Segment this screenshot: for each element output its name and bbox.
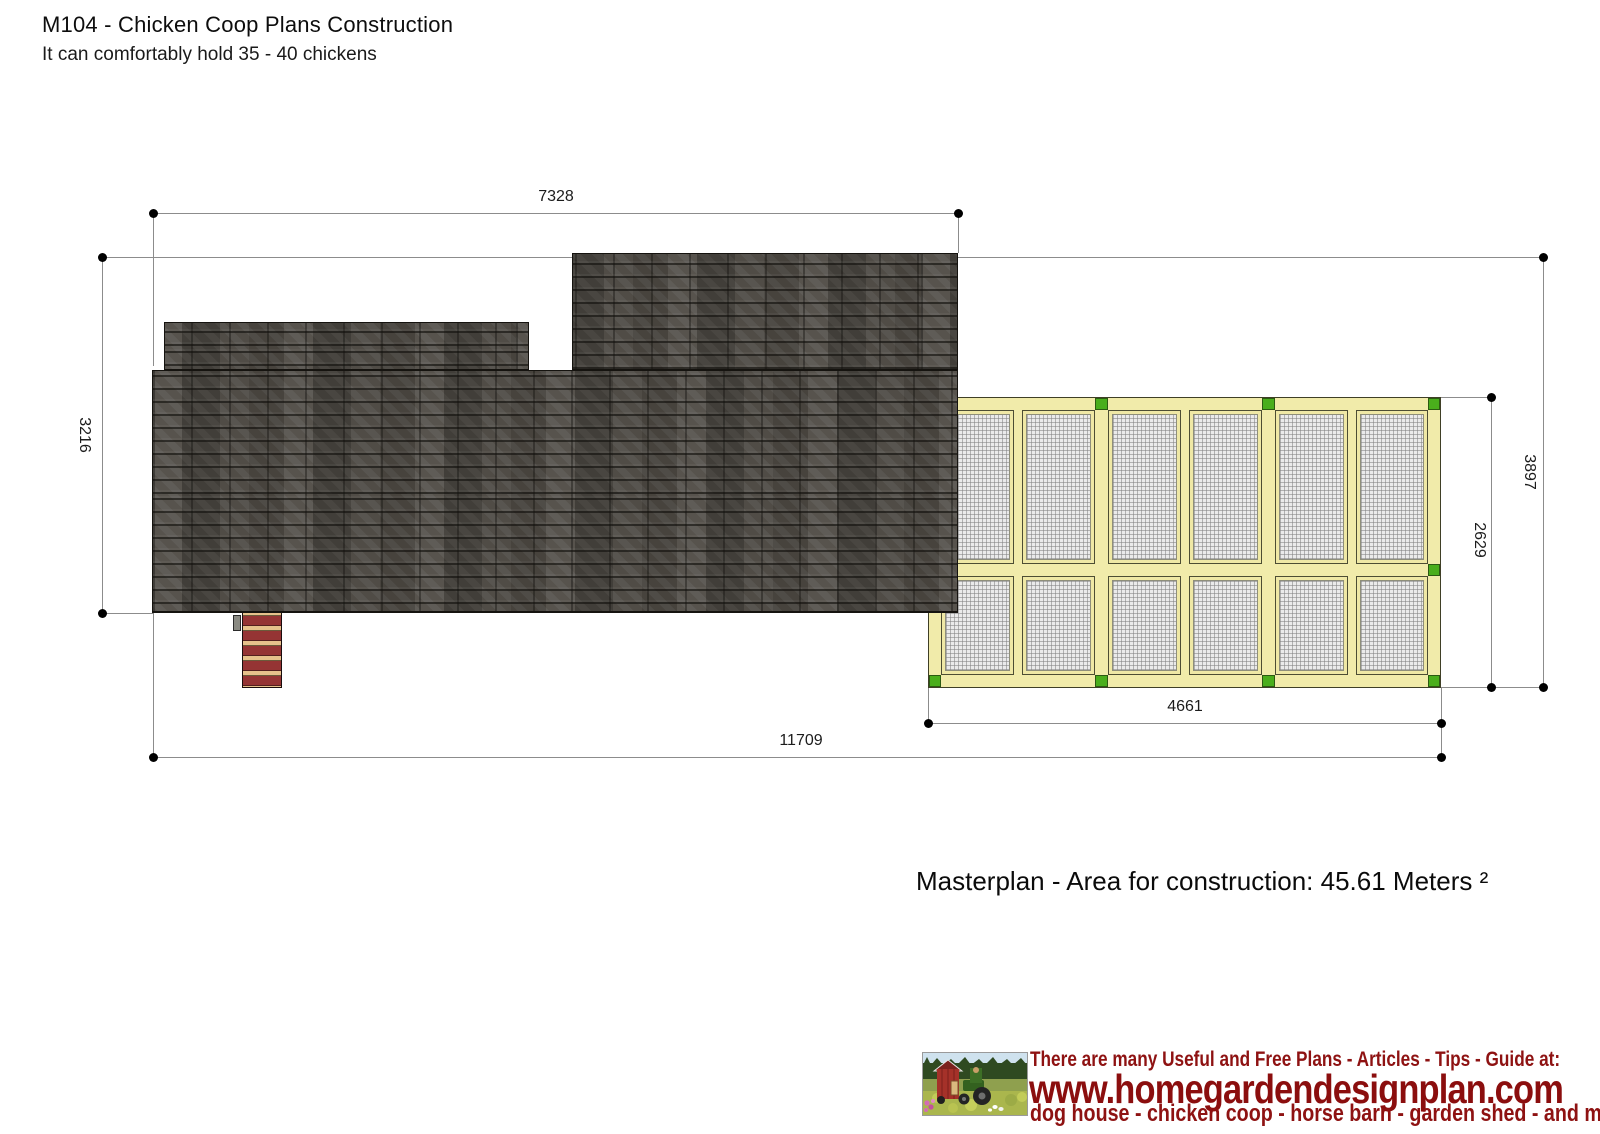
dim-dot — [98, 253, 107, 262]
dim-label-run-width: 4661 — [1145, 698, 1225, 716]
wire-mesh — [1193, 580, 1258, 671]
wire-mesh — [1193, 414, 1258, 560]
dim-dot — [1539, 683, 1548, 692]
corner-connector — [1428, 675, 1440, 687]
dim-dot — [1539, 253, 1548, 262]
extension-line-roof-bottom-left — [102, 613, 153, 614]
post-connector — [1262, 675, 1275, 687]
wire-mesh — [1112, 414, 1177, 560]
ramp-post — [233, 615, 241, 631]
dim-line-run-width — [928, 723, 1441, 724]
dim-dot — [149, 753, 158, 762]
wire-mesh — [1360, 414, 1424, 560]
wire-mesh — [1026, 414, 1091, 560]
mesh-panel — [1108, 576, 1181, 675]
dim-line-roof-width — [153, 213, 958, 214]
dim-dot — [1437, 753, 1446, 762]
dim-line-run-depth — [1491, 397, 1492, 687]
extension-line-run-left — [928, 687, 929, 723]
dim-label-roof-width: 7328 — [516, 188, 596, 206]
chicken-run-frame — [928, 397, 1441, 688]
entry-ramp — [242, 600, 282, 688]
mesh-panel — [1275, 576, 1348, 675]
extension-line-roof-left — [153, 213, 154, 366]
mesh-panel — [1022, 410, 1095, 564]
masterplan-caption: Masterplan - Area for construction: 45.6… — [916, 866, 1488, 897]
dim-dot — [954, 209, 963, 218]
corner-connector — [1428, 398, 1440, 410]
dim-label-roof-depth: 3216 — [73, 395, 95, 475]
wire-mesh — [1026, 580, 1091, 671]
mesh-panel — [1356, 576, 1428, 675]
dim-dot — [1487, 393, 1496, 402]
wire-mesh — [1279, 580, 1344, 671]
wire-mesh — [1279, 414, 1344, 560]
mesh-panel — [1108, 410, 1181, 564]
mesh-panel — [1189, 410, 1262, 564]
dim-dot — [149, 209, 158, 218]
mesh-panel — [1022, 576, 1095, 675]
rail-connector — [1428, 564, 1440, 576]
dim-dot — [924, 719, 933, 728]
dim-label-overall-depth: 3897 — [1518, 432, 1540, 512]
wire-mesh — [1112, 580, 1177, 671]
roof-upper-left-section — [164, 322, 529, 370]
mesh-panel — [1189, 576, 1262, 675]
dim-label-run-depth: 2629 — [1468, 500, 1490, 580]
dim-dot — [1437, 719, 1446, 728]
extension-line-run-top-right — [1441, 397, 1491, 398]
post-connector — [1095, 675, 1108, 687]
roof-main-section — [152, 370, 958, 613]
dim-line-overall-depth — [1543, 257, 1544, 687]
dim-dot — [1487, 683, 1496, 692]
post-connector — [1095, 398, 1108, 410]
roof-upper-right-section — [572, 253, 958, 370]
dim-line-overall-width — [153, 757, 1441, 758]
extension-line-roof-right — [958, 213, 959, 253]
corner-connector — [929, 675, 941, 687]
mesh-panel — [1356, 410, 1428, 564]
footer-categories: dog house - chicken coop - horse barn - … — [1030, 1100, 1600, 1128]
wire-mesh — [1360, 580, 1424, 671]
extension-line-overall-left — [153, 613, 154, 757]
plan-sheet: { "page": { "title": "M104 - Chicken Coo… — [0, 0, 1600, 1134]
dim-line-roof-depth — [102, 257, 103, 613]
footer-logo-image — [922, 1052, 1028, 1116]
page-subtitle: It can comfortably hold 35 - 40 chickens — [42, 44, 377, 66]
dim-label-overall-width: 11709 — [756, 732, 846, 750]
mesh-panel — [1275, 410, 1348, 564]
dim-dot — [98, 609, 107, 618]
post-connector — [1262, 398, 1275, 410]
page-title: M104 - Chicken Coop Plans Construction — [42, 12, 453, 38]
